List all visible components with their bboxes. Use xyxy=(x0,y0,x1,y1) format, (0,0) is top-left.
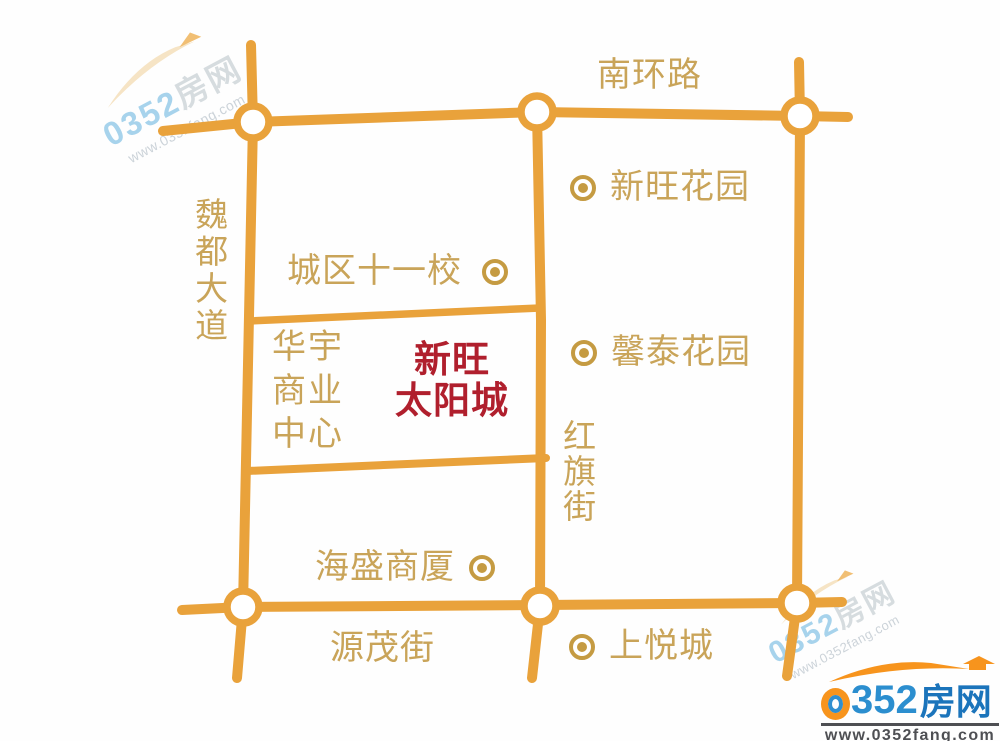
poi-label: 城区十一校 xyxy=(287,254,462,290)
poi-shangyue-city: 上悦城 xyxy=(569,629,714,665)
logo-url: www.0352fang.com xyxy=(821,727,999,741)
poi-marker-icon xyxy=(569,634,595,660)
road-yuanmao-street xyxy=(182,602,842,610)
road-label-weidu-avenue: 魏都大道 xyxy=(191,197,226,345)
road-label-south-ring: 南环路 xyxy=(597,58,702,94)
intersection-circle xyxy=(237,106,269,138)
poi-marker-icon xyxy=(469,555,495,581)
poi-city-no11-school: 城区十一校 xyxy=(287,254,508,290)
poi-marker-icon xyxy=(570,175,596,201)
project-name: 新旺 太阳城 xyxy=(390,340,514,421)
road-label-hongqi-street: 红旗街 xyxy=(559,419,594,524)
block-divider-south xyxy=(247,458,546,471)
poi-label: 海盛商厦 xyxy=(315,550,455,586)
poi-label: 新旺花园 xyxy=(610,170,750,206)
intersection-circle xyxy=(784,100,816,132)
logo-zero-ring-icon xyxy=(821,688,850,720)
poi-marker-dot xyxy=(477,563,487,573)
poi-label: 馨泰花园 xyxy=(611,335,751,371)
poi-xinwang-garden: 新旺花园 xyxy=(570,170,750,206)
road-label-yuanmao-street: 源茂街 xyxy=(330,631,435,667)
logo-divider xyxy=(821,723,999,726)
logo-brand-cn: 房网 xyxy=(920,684,992,720)
poi-marker-dot xyxy=(579,348,589,358)
logo-brand: 352 房网 xyxy=(821,680,999,720)
poi-label: 上悦城 xyxy=(609,629,714,665)
logo-digits: 352 xyxy=(851,680,918,720)
block-divider-north xyxy=(249,308,540,321)
poi-haisheng-building: 海盛商厦 xyxy=(315,550,495,586)
intersection-circle xyxy=(524,590,556,622)
site-logo: 352 房网 www.0352fang.com xyxy=(821,656,999,741)
project-name-line2: 太阳城 xyxy=(390,381,514,422)
poi-xintai-garden: 馨泰花园 xyxy=(571,335,751,371)
intersection-circle xyxy=(521,96,553,128)
poi-huayu-business-center: 华宇商业中心 xyxy=(272,326,352,457)
poi-marker-dot xyxy=(577,642,587,652)
poi-marker-dot xyxy=(490,267,500,277)
poi-marker-icon xyxy=(482,259,508,285)
intersection-circle xyxy=(781,587,813,619)
intersection-circle xyxy=(227,591,259,623)
poi-marker-dot xyxy=(578,183,588,193)
location-map: 0352房网 www.0352fang.com 0352房网 www.0352f… xyxy=(0,0,1000,741)
poi-marker-icon xyxy=(571,340,597,366)
project-name-line1: 新旺 xyxy=(390,340,514,381)
